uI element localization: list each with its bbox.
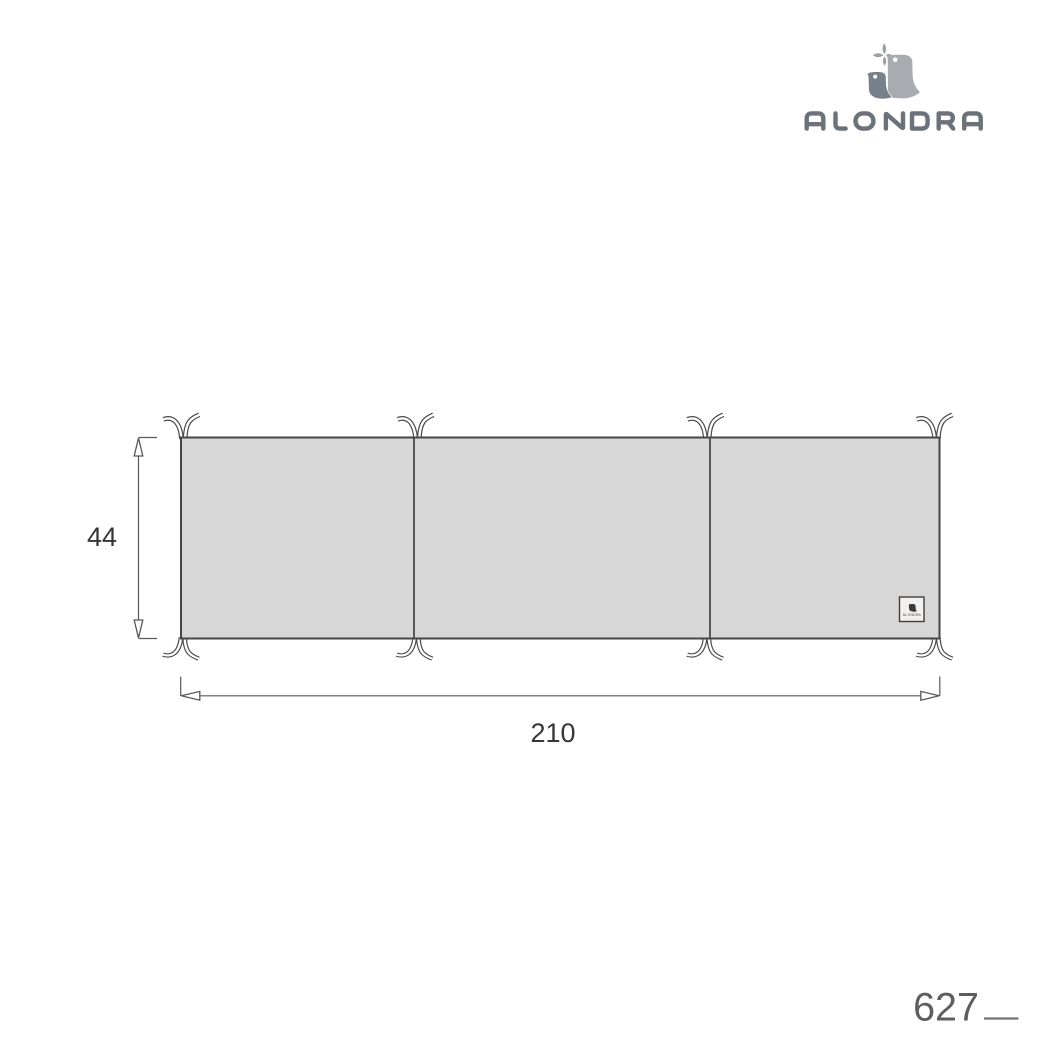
svg-text:ALONDRA: ALONDRA: [903, 613, 922, 617]
svg-text:210: 210: [530, 718, 575, 748]
svg-text:627: 627: [913, 986, 979, 1030]
svg-text:44: 44: [87, 522, 117, 552]
